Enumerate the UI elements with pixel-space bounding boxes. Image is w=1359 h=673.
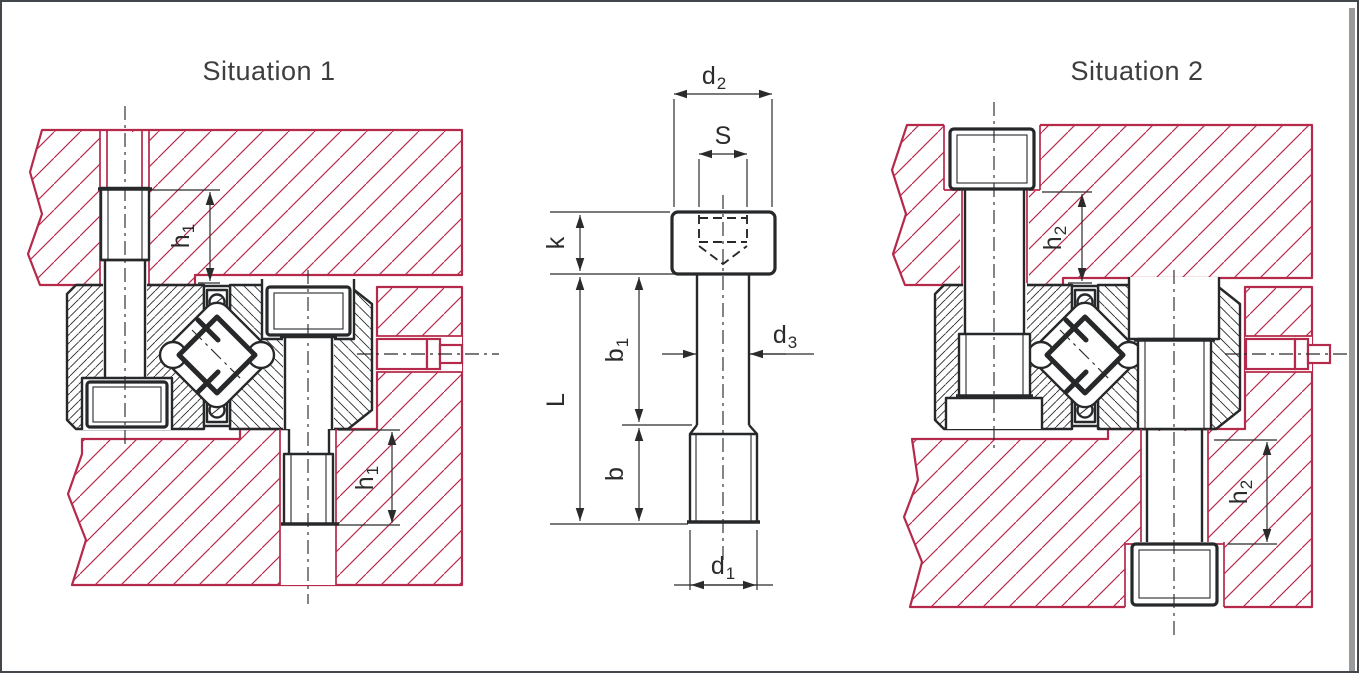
situation1-title: Situation 1 xyxy=(202,56,335,86)
right-edge-shadow xyxy=(1349,8,1355,673)
situation2-panel: Situation 2 xyxy=(892,56,1354,639)
dimension-label-k: k xyxy=(542,236,570,249)
dim-s: S xyxy=(699,122,747,207)
dim-l: L xyxy=(542,277,688,524)
situation1-top-plate xyxy=(28,130,462,286)
screw-head xyxy=(87,382,167,427)
situation1-panel: Situation 1 xyxy=(28,56,499,604)
situation2-title: Situation 2 xyxy=(1070,56,1203,86)
dimension-label-b1: b1 xyxy=(601,338,632,362)
screw-head xyxy=(950,129,1034,189)
dimension-label-d3: d3 xyxy=(773,321,797,352)
screw-body xyxy=(672,195,775,560)
drawing-sheet: Situation 1 xyxy=(0,0,1359,673)
screw-detail-drawing: d2 S xyxy=(542,62,814,590)
dimension-label-d1: d1 xyxy=(711,552,735,583)
technical-drawing: Situation 1 xyxy=(2,2,1359,673)
dim-b: b xyxy=(601,428,639,521)
dimension-label-s: S xyxy=(715,122,732,150)
dimension-label-d2: d2 xyxy=(702,62,726,93)
dimension-label-L: L xyxy=(542,393,570,407)
dim-b1: b1 xyxy=(601,277,692,425)
dimension-label-b: b xyxy=(601,467,629,481)
dim-d3: d3 xyxy=(662,321,814,354)
